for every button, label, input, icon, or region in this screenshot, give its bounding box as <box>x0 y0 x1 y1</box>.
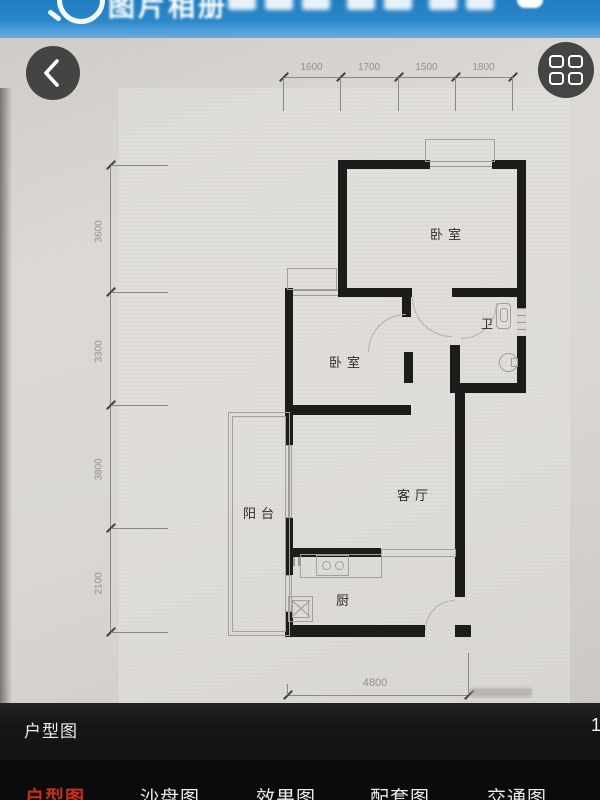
stove-burner <box>335 561 344 570</box>
photo-category-title: 户型图 <box>24 717 78 742</box>
tab-floorplan[interactable]: 户型图 <box>25 783 85 800</box>
balcony-slider-mid <box>288 445 289 518</box>
blurred-text-blob <box>265 0 293 10</box>
dim-label-top-4: 1800 <box>455 62 512 73</box>
counter-passthrough <box>381 549 456 557</box>
room-label-kitchen: 厨 <box>336 590 354 609</box>
hinge-mark <box>293 557 295 566</box>
dim-ext <box>111 632 168 633</box>
dim-label-top-3: 1500 <box>398 62 455 73</box>
back-button[interactable] <box>26 46 80 100</box>
banner-partial-text: 图片相册 <box>108 0 228 24</box>
grid-icon <box>549 55 583 85</box>
room-label-living: 客厅 <box>397 485 433 504</box>
basin-tap <box>511 358 518 367</box>
window-sill <box>293 290 338 291</box>
wall <box>452 288 526 297</box>
window-sill <box>293 295 338 296</box>
wall <box>285 625 425 637</box>
search-icon <box>57 0 105 24</box>
grid-cell <box>549 55 564 68</box>
wall <box>285 405 411 415</box>
floorplan-drawing: 卧室 卫 卧室 客厅 阳台 厨 1600 1700 1500 1800 <box>0 38 600 703</box>
tab-rendering[interactable]: 效果图 <box>256 783 316 800</box>
dim-ext <box>468 653 469 695</box>
wall <box>338 160 347 296</box>
blurred-text-blob <box>466 0 494 10</box>
app-screen: 图片相册 <box>0 0 600 800</box>
banner-chip-icon <box>517 0 543 8</box>
dim-ext <box>111 165 168 166</box>
floorplan-photo-viewer[interactable]: 卧室 卫 卧室 客厅 阳台 厨 1600 1700 1500 1800 <box>0 38 600 703</box>
dim-label-top-2: 1700 <box>340 62 398 73</box>
wall <box>404 352 413 383</box>
hinge-mark <box>298 557 300 566</box>
grid-cell <box>549 72 564 85</box>
dim-ext <box>398 77 399 111</box>
dim-ext <box>111 405 168 406</box>
grid-cell <box>568 72 583 85</box>
photo-info-bar: 户型图 1/ <box>0 703 600 760</box>
wall <box>517 160 526 308</box>
door-arc <box>412 297 452 337</box>
stove <box>316 555 349 576</box>
dim-ext <box>111 528 168 529</box>
blurred-text-blob <box>429 0 457 10</box>
dim-label-left-2: 3300 <box>94 333 105 363</box>
dim-ext <box>340 77 341 111</box>
window-sill <box>430 166 492 167</box>
toilet-inner <box>500 308 508 322</box>
dim-label-left-3: 3800 <box>94 451 105 481</box>
wall <box>455 625 471 637</box>
door-arc <box>425 600 455 630</box>
room-label-bedroom-1: 卧室 <box>430 224 466 243</box>
dim-line-bottom <box>287 695 468 696</box>
blurred-text-blob <box>347 0 375 10</box>
door-arc <box>368 314 406 352</box>
window-bump <box>287 268 337 290</box>
balcony-outline-inner <box>232 416 286 632</box>
page-indicator: 1/ <box>591 715 600 736</box>
wall <box>455 383 465 597</box>
bay-window <box>425 139 495 162</box>
dim-ext <box>512 77 513 111</box>
dim-label-left-1: 3600 <box>94 213 105 243</box>
stove-burner <box>322 561 331 570</box>
watermark-smudge <box>470 688 532 697</box>
top-banner-ad[interactable]: 图片相册 <box>0 0 600 38</box>
grid-cell <box>568 55 583 68</box>
room-label-bath: 卫 <box>481 315 493 332</box>
dim-ext <box>455 77 456 111</box>
window-sill <box>430 161 492 162</box>
chevron-left-icon <box>26 46 80 100</box>
tab-sandtable[interactable]: 沙盘图 <box>140 783 200 800</box>
gallery-grid-button[interactable] <box>538 42 594 98</box>
dim-label-bottom: 4800 <box>330 677 420 689</box>
dim-ext <box>287 684 288 695</box>
room-label-bedroom-2: 卧室 <box>329 352 365 371</box>
bathroom-window <box>517 308 526 336</box>
dim-label-left-4: 2100 <box>94 565 105 595</box>
wall <box>285 288 293 415</box>
dim-label-top-1: 1600 <box>283 62 340 73</box>
tab-amenities[interactable]: 配套图 <box>370 783 430 800</box>
blurred-text-blob <box>302 0 330 10</box>
blurred-text-blob <box>228 0 256 10</box>
wall <box>338 288 412 297</box>
dim-ext <box>111 292 168 293</box>
wall <box>338 160 430 169</box>
category-tab-bar: 户型图 沙盘图 效果图 配套图 交通图 <box>0 760 600 800</box>
blurred-text-blob <box>384 0 412 10</box>
tab-traffic[interactable]: 交通图 <box>487 783 547 800</box>
room-label-balcony: 阳台 <box>243 503 279 522</box>
dim-line-left <box>110 165 111 632</box>
dim-ext <box>283 77 284 111</box>
